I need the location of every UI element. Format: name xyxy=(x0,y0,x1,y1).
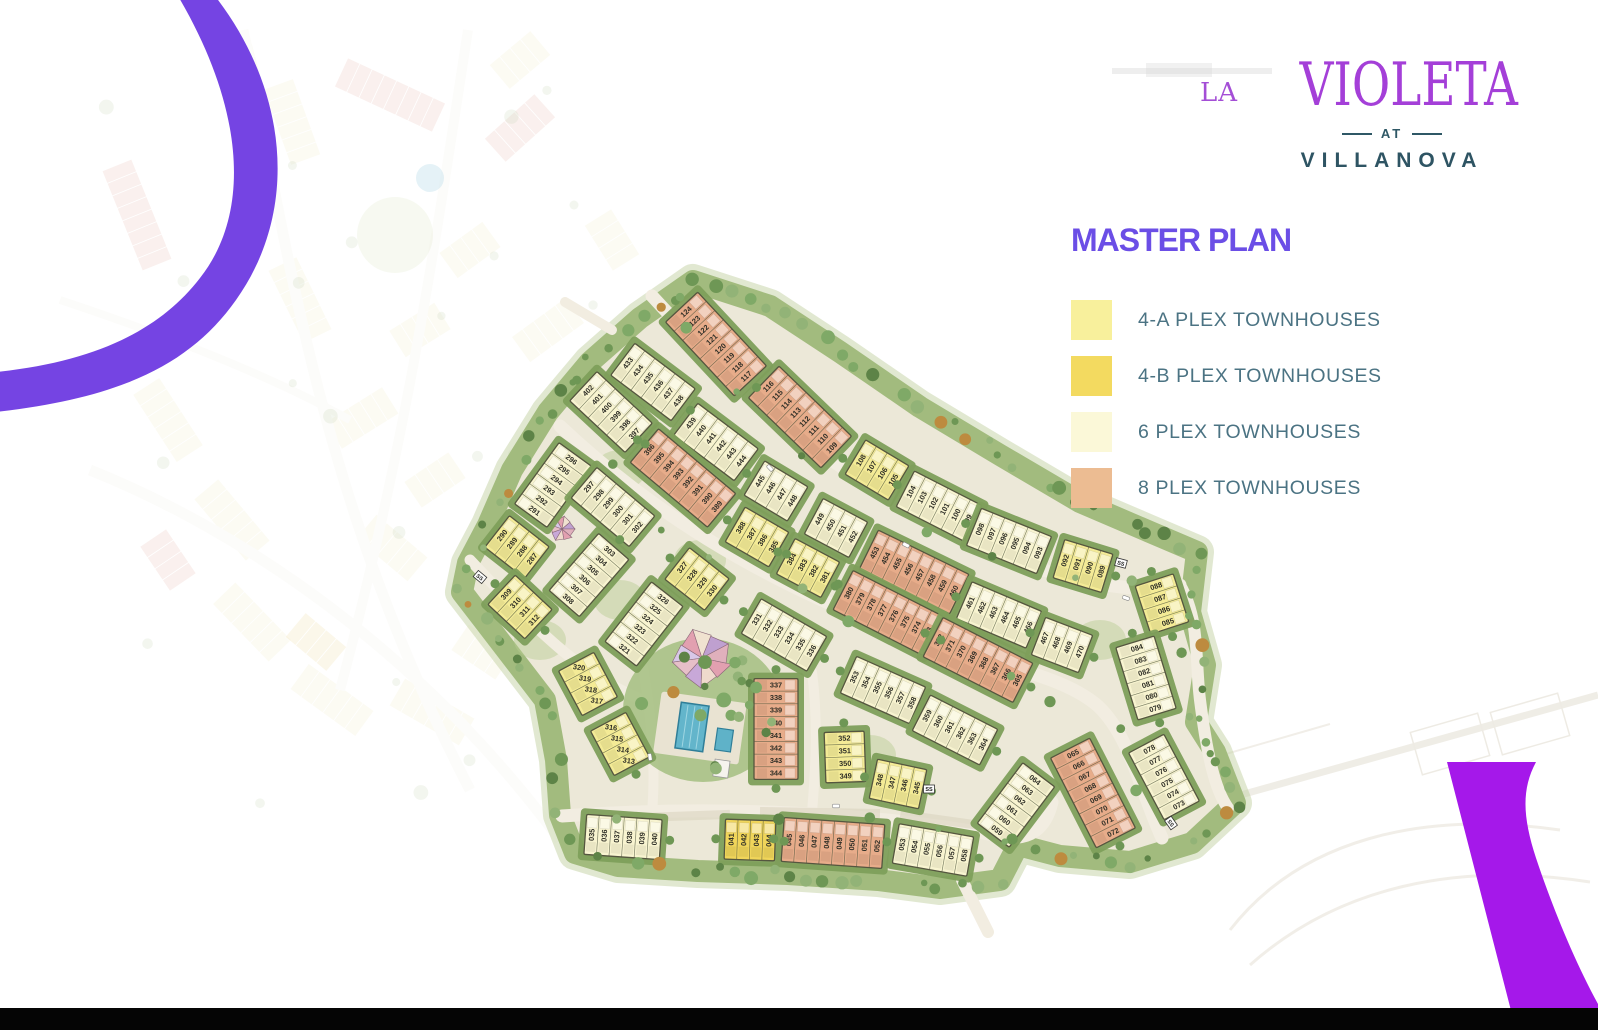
svg-text:039: 039 xyxy=(637,832,647,845)
svg-text:320: 320 xyxy=(572,662,585,673)
svg-text:049: 049 xyxy=(834,837,844,850)
svg-text:037: 037 xyxy=(612,830,622,843)
svg-text:352: 352 xyxy=(838,733,851,742)
master-plan-page: 1241231221211201191181171161151141131121… xyxy=(0,0,1598,1030)
plot-block-035-040: 035036037038039040 xyxy=(577,808,668,866)
divider-line-left xyxy=(1342,133,1372,135)
legend-swatch-4a-plex xyxy=(1071,300,1112,340)
legend-label-4b-plex: 4-B PLEX TOWNHOUSES xyxy=(1138,365,1382,388)
svg-text:048: 048 xyxy=(822,836,832,849)
svg-text:319: 319 xyxy=(578,673,591,684)
svg-text:316: 316 xyxy=(604,722,617,733)
divider-line-right xyxy=(1412,133,1442,135)
page-title: MASTER PLAN xyxy=(1071,222,1491,259)
legend-label-4a-plex: 4-A PLEX TOWNHOUSES xyxy=(1138,309,1381,332)
svg-text:349: 349 xyxy=(839,771,852,780)
svg-text:047: 047 xyxy=(809,835,819,848)
faded-strip-above-logo xyxy=(1112,63,1272,77)
svg-text:315: 315 xyxy=(610,733,623,744)
svg-text:341: 341 xyxy=(770,731,782,740)
legend-item-6-plex: 6 PLEX TOWNHOUSES xyxy=(1071,412,1491,452)
svg-text:314: 314 xyxy=(616,744,630,755)
svg-text:035: 035 xyxy=(587,828,597,841)
logo-villanova: VILLANOVA xyxy=(1266,149,1518,173)
bottom-bar xyxy=(0,1008,1598,1030)
svg-text:052: 052 xyxy=(872,840,882,853)
svg-text:351: 351 xyxy=(838,746,851,755)
legend-swatch-6-plex xyxy=(1071,412,1112,452)
purple-arc-decoration-bottom-right xyxy=(1447,762,1598,1030)
svg-text:SS: SS xyxy=(925,787,933,793)
svg-text:350: 350 xyxy=(839,759,852,768)
brand-logo: LA VIOLETA AT VILLANOVA xyxy=(1266,56,1518,173)
logo-at: AT xyxy=(1381,126,1403,141)
legend-swatch-8-plex xyxy=(1071,468,1112,508)
legend-item-4a-plex: 4-A PLEX TOWNHOUSES xyxy=(1071,300,1491,340)
svg-text:038: 038 xyxy=(624,831,634,844)
svg-text:317: 317 xyxy=(590,695,603,706)
svg-text:051: 051 xyxy=(860,839,870,852)
svg-text:036: 036 xyxy=(599,829,609,842)
svg-text:337: 337 xyxy=(770,681,782,690)
legend-label-6-plex: 6 PLEX TOWNHOUSES xyxy=(1138,421,1361,444)
logo-at-divider: AT xyxy=(1266,126,1518,141)
legend-item-4b-plex: 4-B PLEX TOWNHOUSES xyxy=(1071,356,1491,396)
svg-text:040: 040 xyxy=(650,833,660,846)
svg-text:042: 042 xyxy=(739,833,748,846)
substation-marker: SS xyxy=(924,785,935,793)
svg-text:041: 041 xyxy=(726,833,735,846)
legend-item-8-plex: 8 PLEX TOWNHOUSES xyxy=(1071,468,1491,508)
svg-text:318: 318 xyxy=(584,684,597,695)
logo-la: LA xyxy=(1200,78,1238,108)
logo-violeta: VIOLETA xyxy=(1300,56,1518,114)
svg-text:043: 043 xyxy=(752,834,761,847)
legend-panel: MASTER PLAN 4-A PLEX TOWNHOUSES 4-B PLEX… xyxy=(1071,222,1491,508)
logo-la-violeta: LA VIOLETA xyxy=(1266,56,1518,118)
svg-text:046: 046 xyxy=(797,834,807,847)
svg-text:344: 344 xyxy=(770,769,783,778)
svg-text:313: 313 xyxy=(622,755,635,766)
svg-text:050: 050 xyxy=(847,838,857,851)
legend-swatch-4b-plex xyxy=(1071,356,1112,396)
svg-text:342: 342 xyxy=(770,744,782,753)
svg-text:339: 339 xyxy=(770,706,782,715)
legend-label-8-plex: 8 PLEX TOWNHOUSES xyxy=(1138,477,1361,500)
svg-text:338: 338 xyxy=(770,693,782,702)
legend: 4-A PLEX TOWNHOUSES 4-B PLEX TOWNHOUSES … xyxy=(1071,300,1491,508)
svg-text:343: 343 xyxy=(770,756,782,765)
